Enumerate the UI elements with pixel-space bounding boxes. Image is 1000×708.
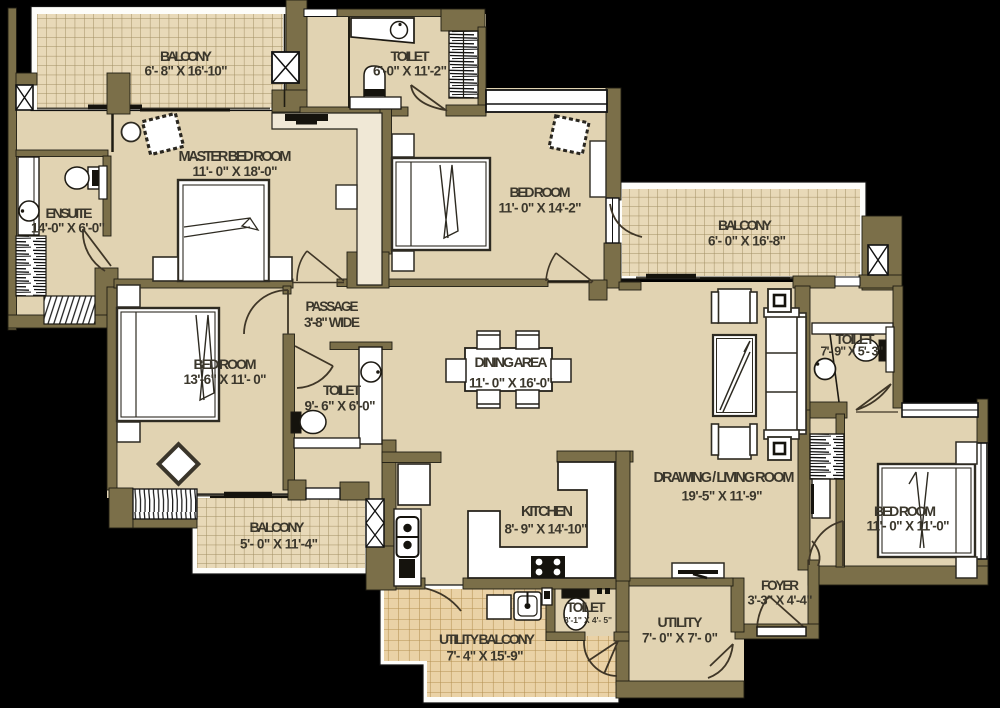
svg-text:3'-1" X 4'- 5": 3'-1" X 4'- 5" <box>564 615 612 625</box>
svg-text:BED ROOM: BED ROOM <box>874 503 936 519</box>
svg-text:11'- 0" X 18'-0": 11'- 0" X 18'-0" <box>193 164 278 179</box>
svg-text:ENSUITE: ENSUITE <box>46 205 93 221</box>
svg-text:UTILITY: UTILITY <box>658 614 704 630</box>
svg-text:6'- 0" X 16'-8": 6'- 0" X 16'-8" <box>708 234 786 249</box>
svg-text:8'- 9" X 14'-10": 8'- 9" X 14'-10" <box>505 522 588 537</box>
svg-text:6'-0" X 11'-2": 6'-0" X 11'-2" <box>373 64 447 79</box>
svg-text:6'- 8" X 16'-10": 6'- 8" X 16'-10" <box>145 64 228 79</box>
svg-text:BALCONY: BALCONY <box>250 519 306 535</box>
svg-text:13'-6" X 11'- 0": 13'-6" X 11'- 0" <box>184 372 267 387</box>
svg-text:BALCONY: BALCONY <box>718 217 773 233</box>
svg-text:PASSAGE: PASSAGE <box>306 299 359 314</box>
svg-text:9'- 6" X 6'-0": 9'- 6" X 6'-0" <box>305 399 376 414</box>
svg-text:19'-5" X 11'-9": 19'-5" X 11'-9" <box>682 489 763 504</box>
svg-text:14'-0" X 6'-0": 14'-0" X 6'-0" <box>31 221 105 236</box>
svg-text:FOYER: FOYER <box>761 578 799 593</box>
svg-text:BED ROOM: BED ROOM <box>510 184 571 200</box>
svg-text:DRAWING / LIVING ROOM: DRAWING / LIVING ROOM <box>654 470 795 486</box>
svg-text:11'- 0" X 14'-2": 11'- 0" X 14'-2" <box>499 201 582 216</box>
svg-text:DINING AREA: DINING AREA <box>475 354 548 370</box>
svg-text:5'- 0" X 11'-4": 5'- 0" X 11'-4" <box>240 537 318 552</box>
svg-text:BALCONY: BALCONY <box>160 48 213 64</box>
svg-text:11'- 0" X 16'-0": 11'- 0" X 16'-0" <box>469 376 553 391</box>
svg-text:MASTER BED ROOM: MASTER BED ROOM <box>179 149 292 165</box>
svg-text:TOILET: TOILET <box>391 48 430 64</box>
svg-text:TOILET: TOILET <box>567 600 607 615</box>
svg-text:3'-8" WIDE: 3'-8" WIDE <box>304 315 360 330</box>
svg-text:3'-3" X 4'-4": 3'-3" X 4'-4" <box>748 593 813 608</box>
svg-text:11'- 0" X 11'-0": 11'- 0" X 11'-0" <box>867 519 950 534</box>
svg-text:KITCHEN: KITCHEN <box>521 504 573 520</box>
svg-text:UTILITY BALCONY: UTILITY BALCONY <box>439 631 536 647</box>
svg-text:BED ROOM: BED ROOM <box>194 356 257 372</box>
svg-text:7'- 9" X 5'- 3": 7'- 9" X 5'- 3" <box>821 345 884 359</box>
svg-text:7'- 4" X 15'-9": 7'- 4" X 15'-9" <box>447 649 524 664</box>
svg-text:TOILET: TOILET <box>323 382 361 398</box>
svg-text:7'- 0" X 7'- 0": 7'- 0" X 7'- 0" <box>642 631 718 646</box>
